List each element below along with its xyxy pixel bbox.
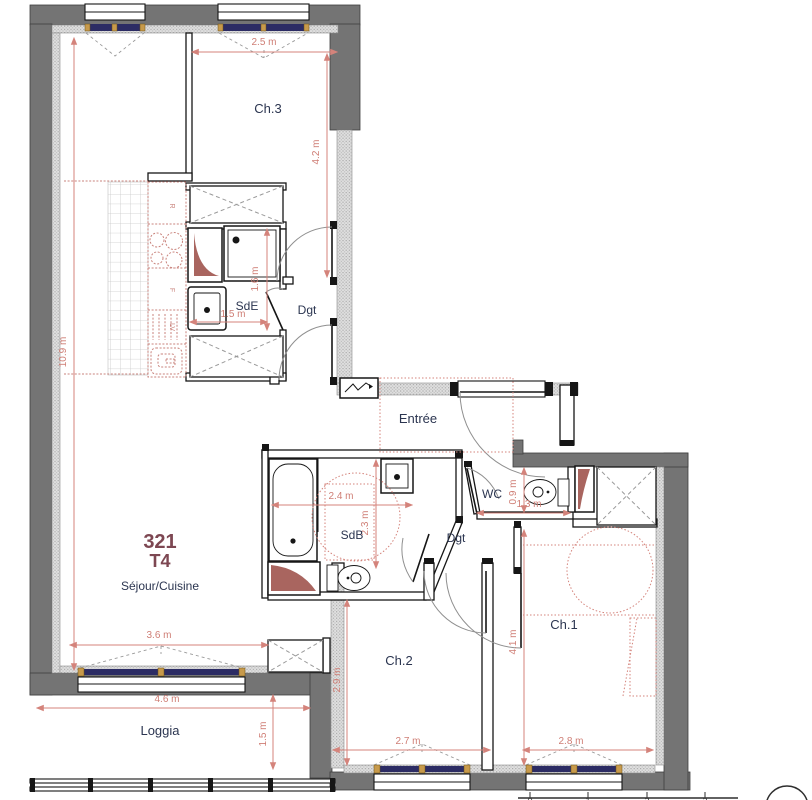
wall-cap [330, 377, 337, 385]
wall-north [30, 5, 360, 25]
scale-tick-0: 0 [527, 796, 532, 800]
unit-type: T4 [149, 551, 170, 571]
room-label-entree: Entrée [399, 411, 437, 426]
floor-plan-drawing: R F LV [0, 0, 812, 800]
scale-tick-3: 3 [702, 796, 707, 800]
wall-cap [456, 516, 463, 523]
wall-wc-wing-north [513, 453, 688, 467]
room-label-ch3: Ch.3 [254, 101, 281, 116]
kitchen-faucet-icon [166, 359, 174, 363]
window-sejour-south [78, 646, 245, 692]
dim-ch1-height: 4.1 m [508, 629, 519, 654]
bathtub-drain [290, 538, 295, 543]
wall-cap [450, 382, 458, 396]
electrical-panel-icon [340, 378, 378, 398]
kitchen-floor-tiles [108, 182, 148, 375]
scale-bar: 0 1 2 3 [518, 792, 738, 800]
closet-ch3 [190, 186, 283, 223]
wall-west [30, 24, 52, 695]
closet-ch1 [597, 467, 656, 525]
wall-kitchen-top [148, 173, 192, 181]
wall-wc-wing-stub [513, 440, 523, 454]
kitchen-area: R F LV [64, 181, 186, 377]
dim-sdb-width: 2.4 m [328, 491, 353, 502]
room-label-wc: WC [482, 487, 502, 501]
wall-sejour-closet-east [323, 638, 330, 673]
dim-sde-height: 1.6 m [250, 266, 261, 291]
fridge-label: R [168, 203, 175, 208]
scale-tick-2: 2 [644, 796, 649, 800]
dim-ch1-width: 2.8 m [558, 736, 583, 747]
wall-ch3-south-stub [283, 277, 293, 284]
hob-icon [151, 252, 163, 264]
party-wall-vertical [337, 130, 352, 385]
wall-sdb-east [456, 458, 462, 523]
dim-ch2-width: 2.7 m [395, 736, 420, 747]
wall-cap [464, 461, 472, 467]
toilet-icon-sdb [327, 565, 370, 591]
dim-wc-width: 1.3 m [516, 499, 541, 510]
dishwasher-label: LV [168, 323, 175, 331]
wall-east [664, 453, 688, 790]
loggia-railing [30, 778, 335, 792]
wall-cap [545, 382, 553, 396]
floor-plan-page: R F LV [0, 0, 812, 800]
shower-drain [233, 237, 240, 244]
room-label-dgt-upper: Dgt [298, 303, 317, 317]
dim-loggia-height: 1.5 m [258, 721, 269, 746]
wall-cap [514, 567, 521, 574]
wall-cap [330, 277, 337, 285]
dim-left-height: 10.9 m [58, 337, 69, 368]
ch1-turning-circle [567, 527, 653, 613]
window-ch2-south [374, 744, 470, 790]
room-label-loggia: Loggia [140, 723, 180, 738]
unit-number: 321 [143, 531, 176, 553]
scale-tick-1: 1 [585, 796, 590, 800]
wall-sdb-west [262, 450, 268, 598]
room-label-ch2: Ch.2 [385, 653, 412, 668]
dim-sejour-width: 3.6 m [146, 630, 171, 641]
wall-sdb-north [262, 450, 462, 458]
window-ch3-north [218, 4, 309, 58]
hob-icon [166, 233, 183, 250]
closet-sejour [268, 640, 323, 672]
wall-cap [514, 521, 521, 528]
wall-cap [570, 382, 578, 396]
ch1-furniture-outline [630, 618, 656, 696]
room-label-dgt-lower: Dgt [447, 531, 466, 545]
entrance-door-opening [458, 381, 545, 397]
insulation-east [656, 467, 664, 765]
window-ch1-south [526, 744, 622, 790]
dim-loggia-width: 4.6 m [154, 694, 179, 705]
closet-sde [190, 336, 283, 377]
room-label-sde: SdE [236, 299, 259, 313]
wall-cap [330, 221, 337, 229]
wall-cap [560, 440, 574, 446]
north-indicator [766, 786, 808, 800]
room-label-sejour: Séjour/Cuisine [121, 579, 199, 593]
door-corridor-entree [279, 325, 332, 380]
sdb-sink-drain [394, 474, 400, 480]
dim-ch3-height: 4.2 m [311, 139, 322, 164]
fixtures [188, 226, 594, 595]
dim-ch2-height: 2.9 m [332, 667, 343, 692]
washbasin-drain [204, 307, 210, 313]
hob-icon [150, 233, 164, 247]
wall-cap [424, 558, 434, 564]
oven-label: F [168, 288, 175, 292]
wall-sejour-ch3 [186, 33, 192, 180]
hob-icon [166, 252, 182, 268]
room-label-sdb: SdB [341, 528, 364, 542]
door-sde [266, 288, 283, 330]
wall-ch2-ch1-partition [482, 563, 493, 770]
window-sejour-north [85, 4, 145, 56]
wall-cap [262, 444, 269, 451]
wall-loggia-east [310, 673, 332, 778]
room-label-ch1: Ch.1 [550, 617, 577, 632]
dim-ch3-width: 2.5 m [251, 37, 276, 48]
wall-northeast-column [330, 24, 360, 130]
wall-cap [482, 558, 493, 564]
wall-ch1-west [514, 527, 521, 573]
